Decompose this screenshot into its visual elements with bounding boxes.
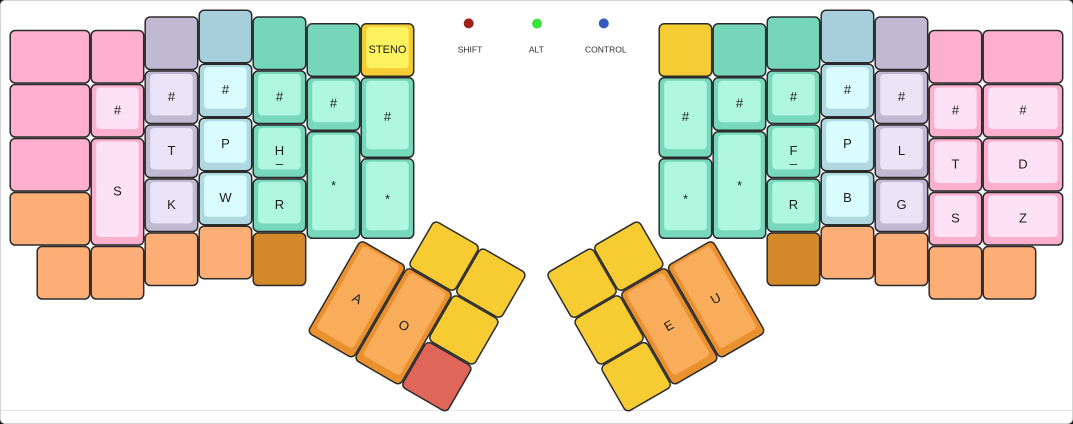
svg-text:K: K xyxy=(167,197,176,212)
svg-text:SHIFT: SHIFT xyxy=(458,44,483,54)
svg-text:S: S xyxy=(113,183,122,198)
svg-text:P: P xyxy=(843,136,852,151)
svg-text:Z: Z xyxy=(1019,210,1027,225)
svg-text:S: S xyxy=(951,210,960,225)
svg-text:*: * xyxy=(331,178,336,193)
svg-text:#: # xyxy=(952,102,960,117)
svg-text:#: # xyxy=(898,89,906,104)
svg-text:#: # xyxy=(790,89,798,104)
svg-text:#: # xyxy=(682,109,690,124)
svg-text:D: D xyxy=(1018,156,1027,171)
svg-text:G: G xyxy=(896,197,906,212)
svg-text:W: W xyxy=(219,190,232,205)
svg-text:*: * xyxy=(385,192,390,207)
svg-text:_: _ xyxy=(789,150,798,165)
svg-text:#: # xyxy=(222,82,230,97)
svg-text:R: R xyxy=(275,197,284,212)
svg-text:#: # xyxy=(330,96,338,111)
svg-text:P: P xyxy=(221,136,230,151)
svg-text:T: T xyxy=(952,156,960,171)
svg-text:#: # xyxy=(168,89,176,104)
svg-text:#: # xyxy=(844,82,852,97)
svg-text:#: # xyxy=(114,102,122,117)
svg-text:_: _ xyxy=(275,150,284,165)
svg-text:*: * xyxy=(737,178,742,193)
svg-text:#: # xyxy=(736,96,744,111)
svg-text:#: # xyxy=(276,89,284,104)
svg-text:*: * xyxy=(683,192,688,207)
svg-text:T: T xyxy=(168,143,176,158)
svg-text:R: R xyxy=(789,197,798,212)
svg-text:#: # xyxy=(384,109,392,124)
svg-text:CONTROL: CONTROL xyxy=(585,44,627,54)
svg-text:STENO: STENO xyxy=(369,44,407,56)
svg-text:B: B xyxy=(843,190,852,205)
svg-text:ALT: ALT xyxy=(529,44,544,54)
svg-text:L: L xyxy=(898,143,905,158)
svg-text:#: # xyxy=(1019,102,1027,117)
